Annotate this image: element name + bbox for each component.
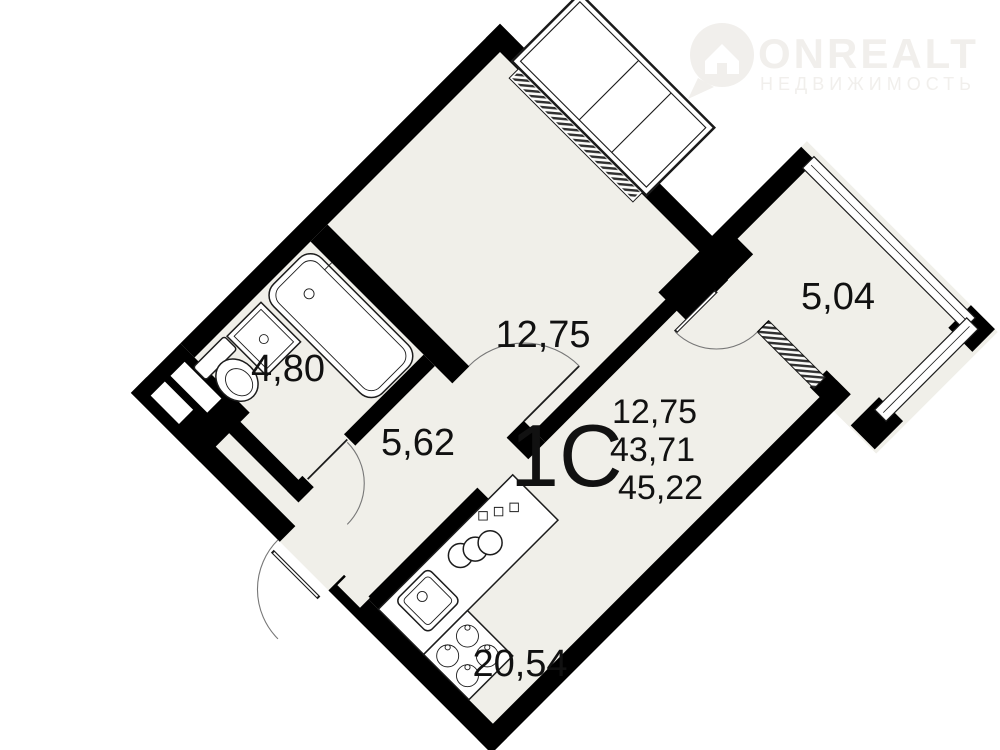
logo-brand-text: ONREALT: [758, 30, 979, 77]
apartment-area-value: 43,71: [610, 431, 695, 469]
total-area-value: 45,22: [618, 469, 703, 507]
living-area-value: 12,75: [612, 393, 697, 431]
floorplan-page: ONREALT НЕДВИЖИМОСТЬ: [0, 0, 1000, 750]
apartment-type-label: 1С: [510, 406, 623, 505]
living-room-area-label: 12,75: [495, 314, 590, 356]
hallway-area-label: 5,62: [381, 422, 455, 464]
floorplan-canvas: ONREALT НЕДВИЖИМОСТЬ: [0, 0, 1000, 750]
apartment-summary: 1С 12,75 43,71 45,22: [510, 393, 703, 507]
bathroom-area-label: 4,80: [251, 348, 325, 390]
balcony-area-label: 5,04: [801, 276, 875, 318]
logo-subtitle-text: НЕДВИЖИМОСТЬ: [760, 74, 976, 94]
kitchen-living-area-label: 20,54: [472, 643, 567, 685]
